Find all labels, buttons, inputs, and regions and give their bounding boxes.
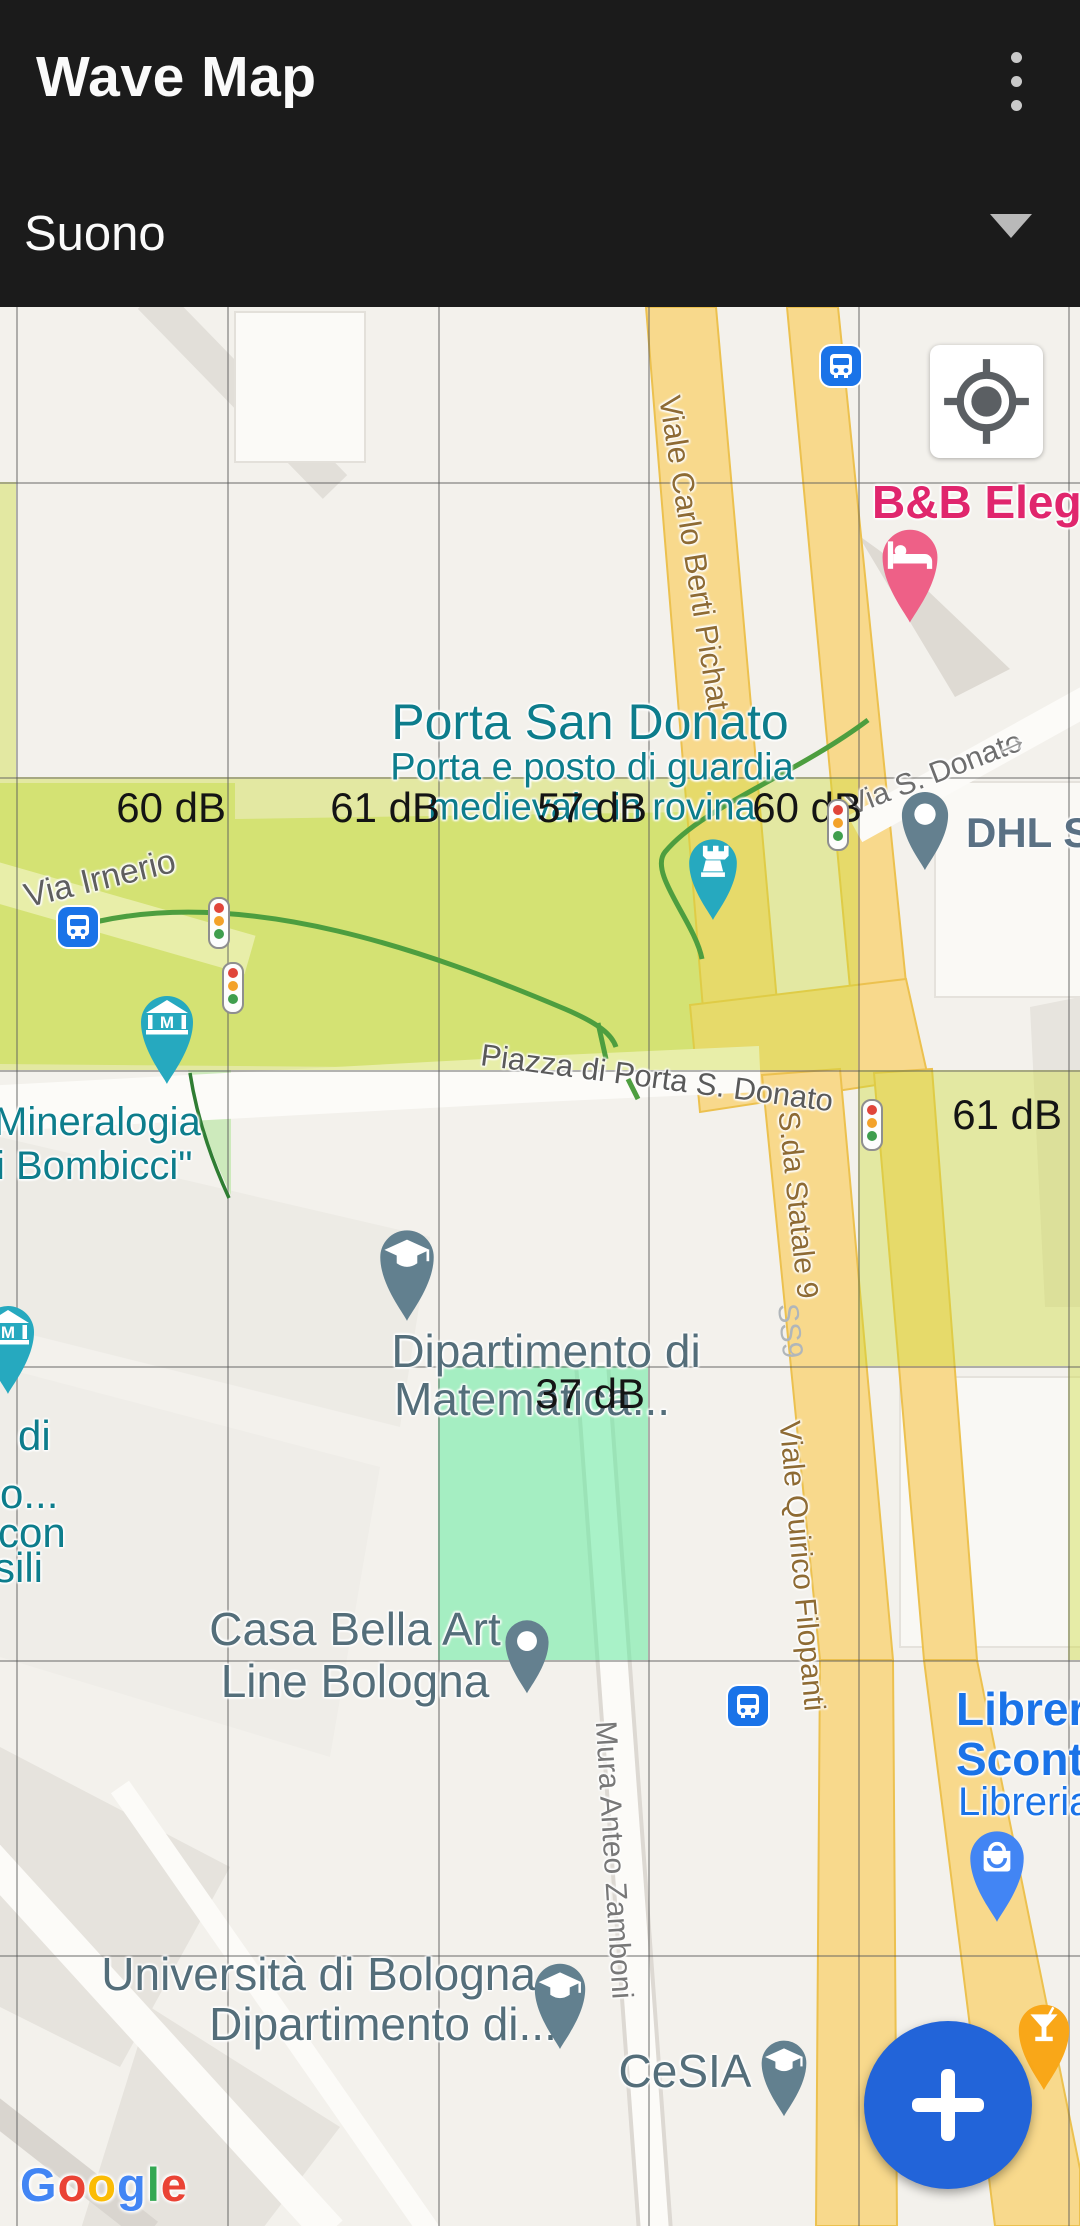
noise-label-edge: B xyxy=(0,490,2,538)
svg-text:M: M xyxy=(1,1323,15,1342)
noise-label-37db: 37 dB xyxy=(515,1370,645,1418)
hotel-pin[interactable] xyxy=(872,519,948,625)
traffic-light-icon xyxy=(827,799,849,851)
museum-pin[interactable]: M xyxy=(0,1296,44,1396)
app-bar: Wave Map Suono xyxy=(0,0,1080,307)
wave-map-app: Via S. Donato → Via Irnerio Piazza di Po… xyxy=(0,0,1080,2226)
layer-selector[interactable]: Suono xyxy=(0,188,1080,280)
noise-label-61db-1: 61 dB xyxy=(310,784,440,832)
bus-stop-icon xyxy=(821,346,861,386)
poi-label-porta-sub1: Porta e posto di guardia xyxy=(390,747,794,788)
road-label-ss9: SS9 xyxy=(771,1302,808,1360)
school-pin[interactable] xyxy=(525,1954,595,2051)
poi-label-libreria-2: Sconto xyxy=(956,1735,1080,1785)
dhl-dot-pin[interactable] xyxy=(893,783,957,872)
noise-label-61db-2: 61 dB xyxy=(932,1091,1062,1139)
traffic-light-icon xyxy=(208,897,230,949)
layer-selector-value: Suono xyxy=(24,206,166,262)
poi-label-fragment-di: di xyxy=(18,1413,51,1458)
dot-icon xyxy=(914,804,935,825)
map-canvas[interactable]: Via S. Donato → Via Irnerio Piazza di Po… xyxy=(0,307,1080,2226)
svg-text:M: M xyxy=(160,1013,174,1032)
poi-label-universita-1: Università di Bologna, xyxy=(101,1950,548,2000)
kebab-menu-icon xyxy=(1011,76,1022,87)
dot-icon xyxy=(517,1631,537,1651)
noise-label-60db-1: 60 dB xyxy=(96,784,226,832)
my-location-button[interactable] xyxy=(930,345,1043,458)
museum-pin[interactable]: M xyxy=(131,986,203,1086)
add-measurement-fab[interactable] xyxy=(864,2021,1032,2189)
poi-label-mineralogia-2: i Bombicci" xyxy=(0,1145,192,1188)
kebab-menu-icon xyxy=(1011,52,1022,63)
bus-stop-icon xyxy=(728,1686,768,1726)
traffic-light-icon xyxy=(861,1099,883,1151)
overflow-menu-button[interactable] xyxy=(998,50,1034,120)
gps-crosshair-icon xyxy=(930,345,1043,458)
bus-stop-icon xyxy=(58,907,98,947)
poi-label-casa-bella-2: Line Bologna xyxy=(221,1657,490,1707)
shop-pin[interactable] xyxy=(960,1821,1034,1924)
google-attribution: Google xyxy=(20,2157,188,2212)
logo-letter: o xyxy=(87,2158,117,2211)
poi-label-mineralogia-1: Mineralogia xyxy=(0,1101,201,1144)
poi-label-fragment-sili: sili xyxy=(0,1545,43,1590)
logo-letter: G xyxy=(20,2158,58,2211)
app-title: Wave Map xyxy=(36,44,317,110)
kebab-menu-icon xyxy=(1011,100,1022,111)
poi-label-casa-bella-1: Casa Bella Art xyxy=(209,1605,500,1655)
logo-letter: g xyxy=(117,2158,147,2211)
noise-label-57db: 57 dB xyxy=(517,784,647,832)
logo-letter: l xyxy=(147,2158,161,2211)
poi-label-porta-san-donato: Porta San Donato xyxy=(391,695,789,749)
logo-letter: o xyxy=(58,2158,88,2211)
poi-label-dhl: DHL ST xyxy=(966,810,1080,855)
poi-label-cesia: CeSIA xyxy=(619,2047,752,2097)
castle-pin[interactable] xyxy=(680,830,746,922)
poi-label-libreria-3: Libreria xyxy=(958,1781,1080,1824)
traffic-light-icon xyxy=(222,962,244,1014)
school-pin[interactable] xyxy=(753,2032,815,2118)
poi-label-libreria-1: Libreria xyxy=(956,1685,1080,1735)
dropdown-caret-icon xyxy=(990,214,1032,238)
school-pin[interactable] xyxy=(370,1220,444,1323)
casa-bella-dot-pin[interactable] xyxy=(497,1612,557,1695)
logo-letter: e xyxy=(161,2158,188,2211)
poi-label-universita-2: Dipartimento di... xyxy=(209,2000,557,2050)
